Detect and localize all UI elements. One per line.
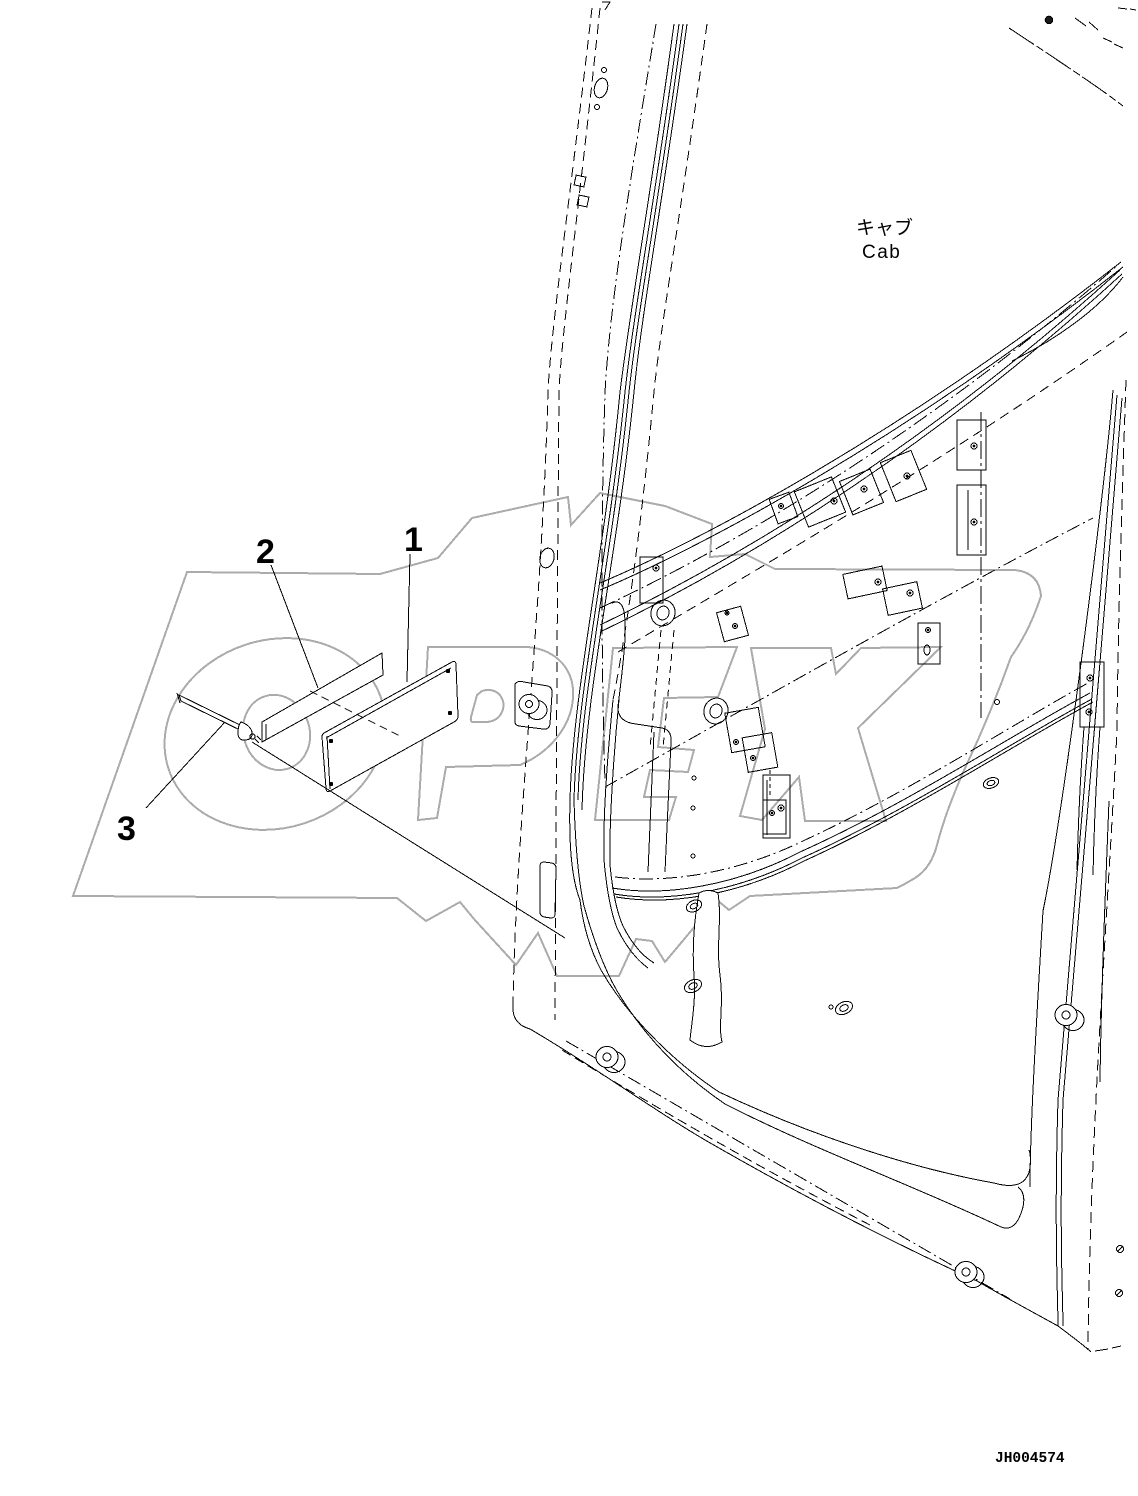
svg-text:Cab: Cab	[862, 242, 901, 263]
svg-text:キャブ: キャブ	[856, 216, 913, 239]
svg-text:JH004574: JH004574	[995, 1451, 1065, 1467]
svg-text:1: 1	[404, 521, 423, 559]
svg-text:2: 2	[256, 533, 275, 571]
svg-text:3: 3	[117, 810, 136, 848]
